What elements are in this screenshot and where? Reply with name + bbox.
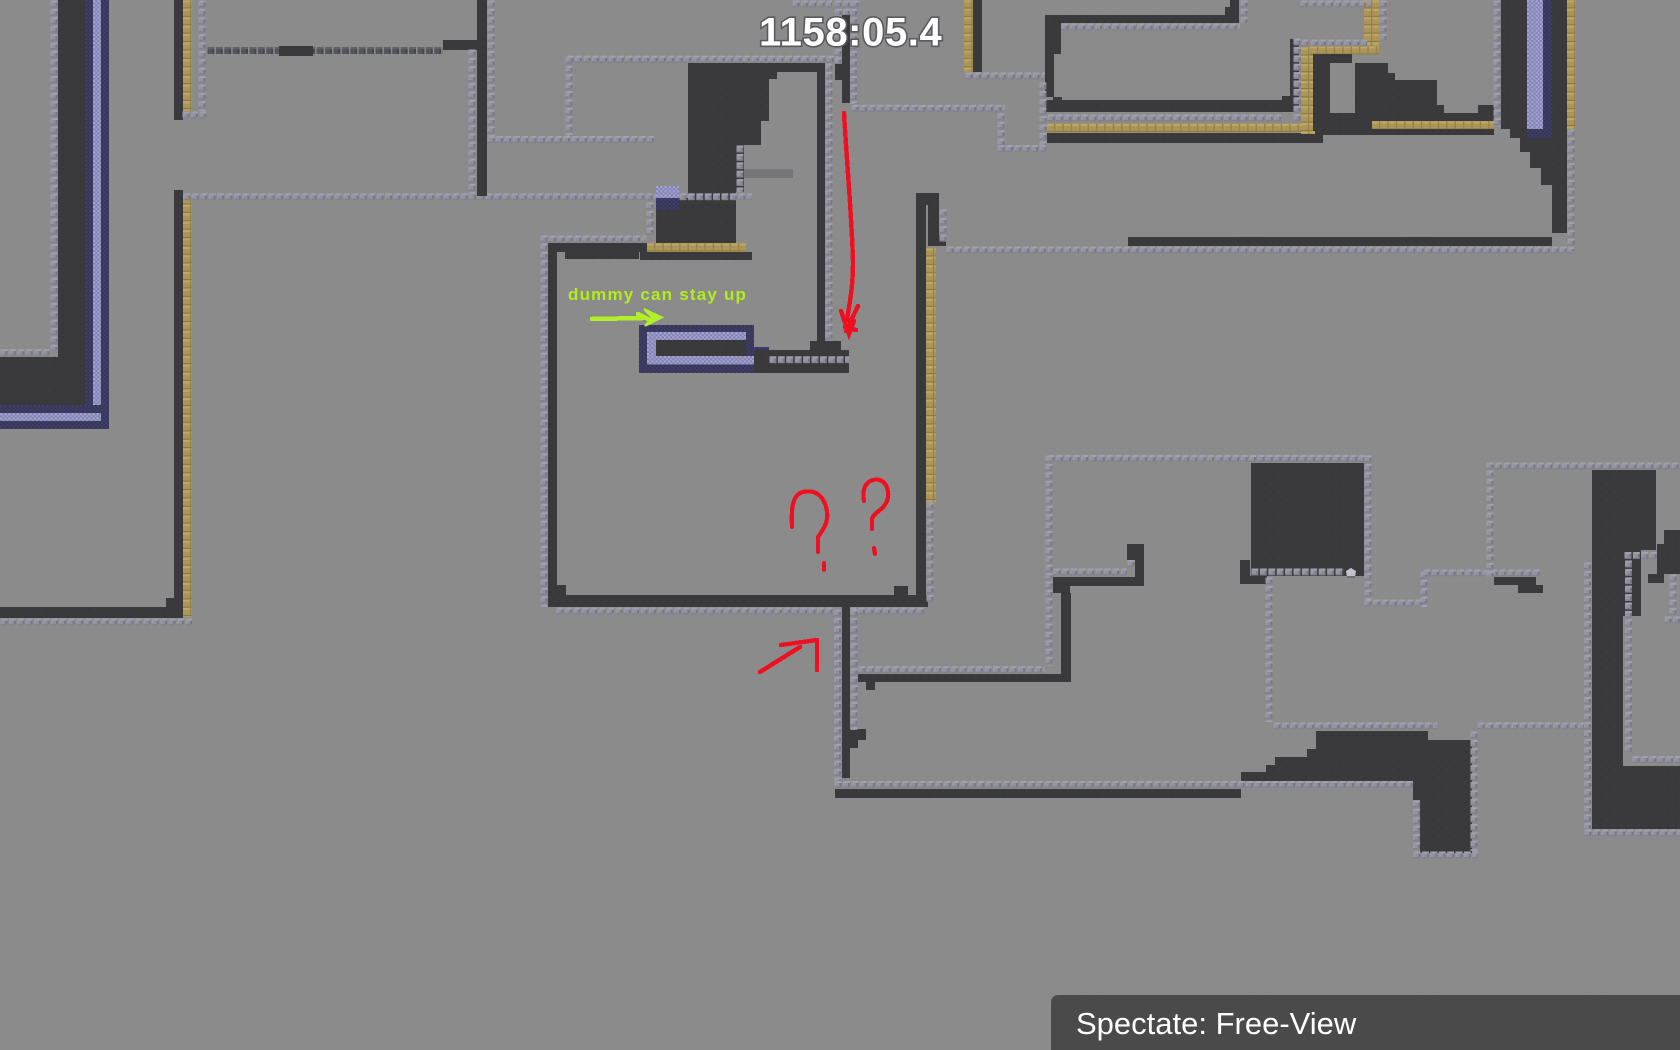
svg-text:dummy can stay up: dummy can stay up	[568, 285, 747, 304]
svg-text:Spectate: Free-View: Spectate: Free-View	[1076, 1006, 1357, 1041]
svg-text:1158:05.4: 1158:05.4	[759, 11, 943, 55]
